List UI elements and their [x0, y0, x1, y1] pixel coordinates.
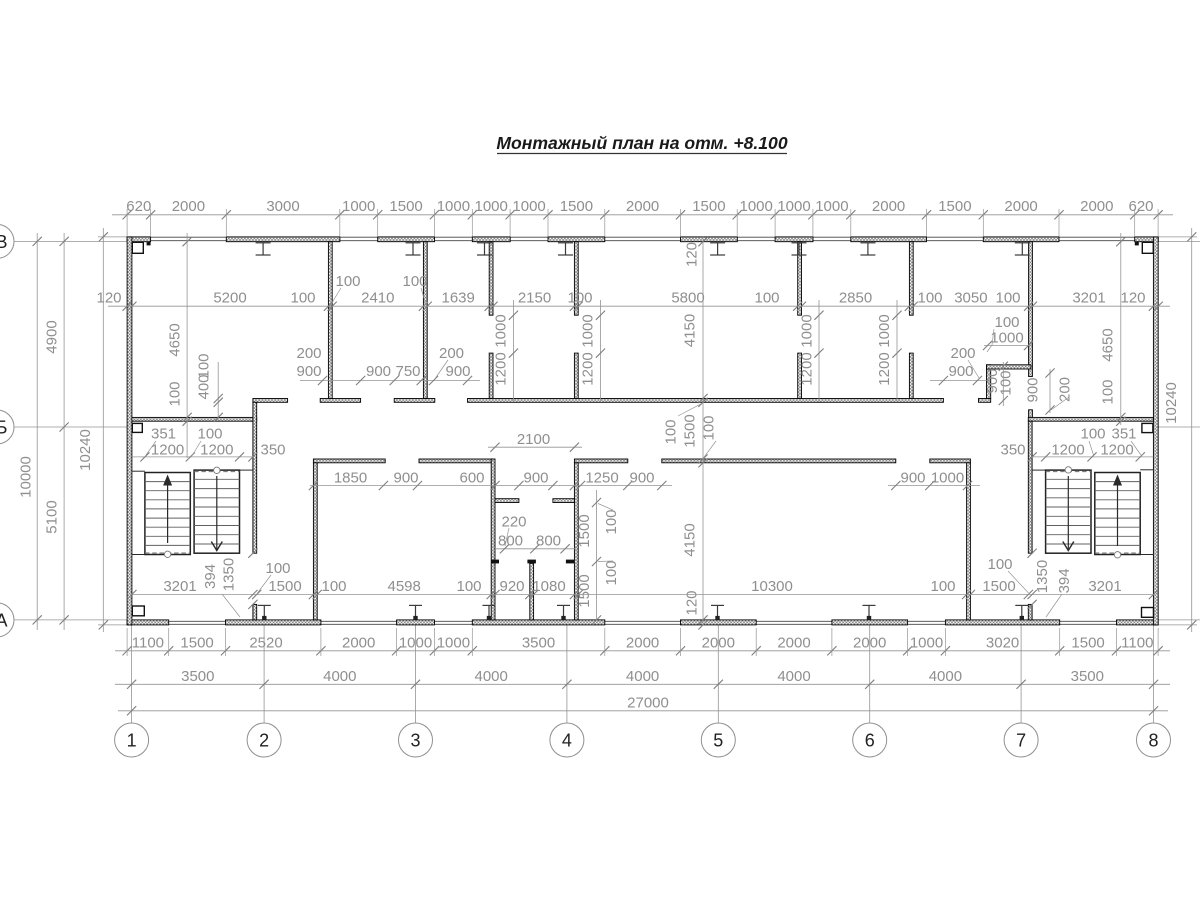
- svg-text:900: 900: [1025, 377, 1042, 402]
- svg-text:3201: 3201: [163, 578, 196, 595]
- svg-text:3500: 3500: [181, 668, 214, 685]
- svg-text:100: 100: [994, 314, 1019, 331]
- svg-text:1639: 1639: [442, 290, 475, 307]
- svg-text:120: 120: [684, 242, 701, 267]
- svg-text:1500: 1500: [1071, 635, 1104, 652]
- svg-text:1500: 1500: [982, 578, 1015, 595]
- svg-text:3020: 3020: [986, 635, 1019, 652]
- svg-text:7: 7: [1016, 731, 1026, 751]
- svg-text:3: 3: [410, 731, 420, 751]
- svg-text:1000: 1000: [931, 469, 964, 486]
- svg-text:1000: 1000: [740, 198, 773, 215]
- svg-text:1500: 1500: [268, 578, 301, 595]
- svg-text:1: 1: [127, 731, 137, 751]
- svg-text:3201: 3201: [1072, 290, 1105, 307]
- svg-text:1000: 1000: [437, 198, 470, 215]
- svg-text:1500: 1500: [692, 198, 725, 215]
- svg-text:100: 100: [402, 273, 427, 290]
- svg-text:2410: 2410: [361, 290, 394, 307]
- svg-text:1200: 1200: [876, 352, 893, 385]
- svg-text:4150: 4150: [682, 314, 699, 347]
- svg-text:1000: 1000: [815, 198, 848, 215]
- svg-text:900: 900: [393, 469, 418, 486]
- svg-text:900: 900: [900, 469, 925, 486]
- svg-text:1500: 1500: [576, 514, 593, 547]
- svg-text:1200: 1200: [799, 352, 816, 385]
- svg-text:4598: 4598: [388, 578, 421, 595]
- svg-text:1500: 1500: [180, 635, 213, 652]
- svg-text:2100: 2100: [517, 431, 550, 448]
- svg-text:2150: 2150: [518, 290, 551, 307]
- svg-text:900: 900: [366, 363, 391, 380]
- svg-text:5200: 5200: [213, 290, 246, 307]
- svg-text:2000: 2000: [342, 635, 375, 652]
- svg-text:100: 100: [995, 290, 1020, 307]
- svg-text:100: 100: [290, 290, 315, 307]
- svg-text:1500: 1500: [938, 198, 971, 215]
- svg-text:2000: 2000: [626, 198, 659, 215]
- svg-text:100: 100: [567, 290, 592, 307]
- svg-text:1350: 1350: [221, 558, 238, 591]
- svg-text:4000: 4000: [323, 668, 356, 685]
- svg-text:350: 350: [1000, 442, 1025, 459]
- svg-text:1000: 1000: [342, 198, 375, 215]
- svg-text:1200: 1200: [200, 442, 233, 459]
- svg-text:100: 100: [701, 415, 718, 440]
- svg-text:10000: 10000: [18, 456, 35, 498]
- svg-text:100: 100: [663, 419, 680, 444]
- svg-text:100: 100: [1100, 379, 1117, 404]
- svg-text:620: 620: [126, 198, 151, 215]
- svg-text:4150: 4150: [682, 523, 699, 556]
- svg-text:750: 750: [395, 363, 420, 380]
- svg-text:200: 200: [296, 345, 321, 362]
- svg-text:1850: 1850: [334, 469, 367, 486]
- svg-text:2000: 2000: [1004, 198, 1037, 215]
- svg-text:3500: 3500: [1071, 668, 1104, 685]
- svg-text:4650: 4650: [1100, 328, 1117, 361]
- svg-text:1000: 1000: [475, 198, 508, 215]
- svg-text:2000: 2000: [1080, 198, 1113, 215]
- svg-text:900: 900: [296, 363, 321, 380]
- svg-text:200: 200: [950, 345, 975, 362]
- svg-text:100: 100: [1080, 426, 1105, 443]
- svg-text:2000: 2000: [777, 635, 810, 652]
- svg-text:220: 220: [501, 514, 526, 531]
- svg-text:120: 120: [96, 290, 121, 307]
- svg-text:600: 600: [459, 469, 484, 486]
- svg-text:5100: 5100: [44, 500, 61, 533]
- svg-text:2: 2: [259, 731, 269, 751]
- svg-text:1080: 1080: [532, 578, 565, 595]
- svg-text:1000: 1000: [437, 635, 470, 652]
- svg-text:394: 394: [1056, 568, 1073, 593]
- svg-text:1250: 1250: [585, 469, 618, 486]
- svg-text:Монтажный план на отм. +8.100: Монтажный план на отм. +8.100: [496, 133, 787, 153]
- svg-text:350: 350: [260, 442, 285, 459]
- svg-text:900: 900: [445, 363, 470, 380]
- svg-text:1200: 1200: [493, 352, 510, 385]
- svg-text:4: 4: [562, 731, 572, 751]
- svg-text:1200: 1200: [580, 352, 597, 385]
- svg-text:400: 400: [196, 374, 213, 399]
- svg-text:Б: Б: [0, 418, 7, 438]
- svg-text:1000: 1000: [876, 314, 893, 347]
- svg-text:100: 100: [167, 381, 184, 406]
- svg-text:100: 100: [603, 560, 620, 585]
- svg-text:2000: 2000: [702, 635, 735, 652]
- svg-text:1500: 1500: [389, 198, 422, 215]
- svg-text:1100: 1100: [132, 635, 164, 652]
- svg-text:100: 100: [998, 370, 1015, 395]
- svg-text:1000: 1000: [799, 314, 816, 347]
- svg-text:800: 800: [498, 533, 523, 550]
- svg-text:5800: 5800: [671, 290, 704, 307]
- svg-text:4650: 4650: [167, 323, 184, 356]
- svg-text:1000: 1000: [493, 314, 510, 347]
- svg-text:1500: 1500: [576, 574, 593, 607]
- svg-text:100: 100: [197, 426, 222, 443]
- svg-text:1000: 1000: [512, 198, 545, 215]
- svg-text:1200: 1200: [1051, 442, 1084, 459]
- svg-text:920: 920: [499, 578, 524, 595]
- svg-text:10300: 10300: [751, 578, 793, 595]
- svg-text:200: 200: [1057, 377, 1074, 402]
- svg-text:100: 100: [930, 578, 955, 595]
- svg-text:2000: 2000: [872, 198, 905, 215]
- svg-text:2000: 2000: [626, 635, 659, 652]
- svg-text:100: 100: [335, 273, 360, 290]
- svg-text:6: 6: [865, 731, 875, 751]
- svg-text:351: 351: [1111, 426, 1136, 443]
- svg-text:3050: 3050: [954, 290, 987, 307]
- svg-text:1200: 1200: [1100, 442, 1133, 459]
- svg-text:1000: 1000: [399, 635, 432, 652]
- svg-text:1500: 1500: [560, 198, 593, 215]
- svg-text:100: 100: [265, 560, 290, 577]
- svg-text:27000: 27000: [627, 695, 669, 712]
- svg-text:А: А: [0, 610, 8, 630]
- svg-text:800: 800: [536, 533, 561, 550]
- svg-text:120: 120: [684, 590, 701, 615]
- svg-text:10240: 10240: [1163, 382, 1180, 424]
- svg-text:620: 620: [1128, 198, 1153, 215]
- svg-text:100: 100: [754, 290, 779, 307]
- svg-text:1500: 1500: [682, 414, 699, 447]
- svg-text:100: 100: [456, 578, 481, 595]
- svg-text:120: 120: [1120, 290, 1145, 307]
- svg-text:1000: 1000: [777, 198, 810, 215]
- svg-text:8: 8: [1148, 731, 1158, 751]
- svg-text:1100: 1100: [1121, 635, 1153, 652]
- svg-text:10240: 10240: [77, 429, 94, 471]
- svg-text:2850: 2850: [839, 290, 872, 307]
- svg-text:1000: 1000: [580, 314, 597, 347]
- svg-text:900: 900: [948, 363, 973, 380]
- svg-text:900: 900: [523, 469, 548, 486]
- svg-text:100: 100: [603, 509, 620, 534]
- svg-text:4900: 4900: [44, 320, 61, 353]
- svg-text:2520: 2520: [249, 635, 282, 652]
- svg-text:351: 351: [151, 426, 176, 443]
- svg-text:100: 100: [917, 290, 942, 307]
- svg-text:1200: 1200: [151, 442, 184, 459]
- svg-text:В: В: [0, 232, 8, 252]
- svg-text:2000: 2000: [172, 198, 205, 215]
- svg-text:900: 900: [629, 469, 654, 486]
- svg-text:4000: 4000: [777, 668, 810, 685]
- svg-text:100: 100: [321, 578, 346, 595]
- svg-text:3500: 3500: [522, 635, 555, 652]
- svg-text:4000: 4000: [475, 668, 508, 685]
- svg-text:100: 100: [987, 556, 1012, 573]
- svg-text:5: 5: [713, 731, 723, 751]
- svg-text:3201: 3201: [1088, 578, 1121, 595]
- svg-text:394: 394: [202, 564, 219, 589]
- svg-text:3000: 3000: [266, 198, 299, 215]
- svg-text:4000: 4000: [626, 668, 659, 685]
- svg-text:1350: 1350: [1034, 560, 1051, 593]
- svg-text:4000: 4000: [929, 668, 962, 685]
- svg-text:200: 200: [439, 345, 464, 362]
- svg-text:1000: 1000: [990, 330, 1023, 347]
- svg-text:1000: 1000: [910, 635, 943, 652]
- svg-text:2000: 2000: [853, 635, 886, 652]
